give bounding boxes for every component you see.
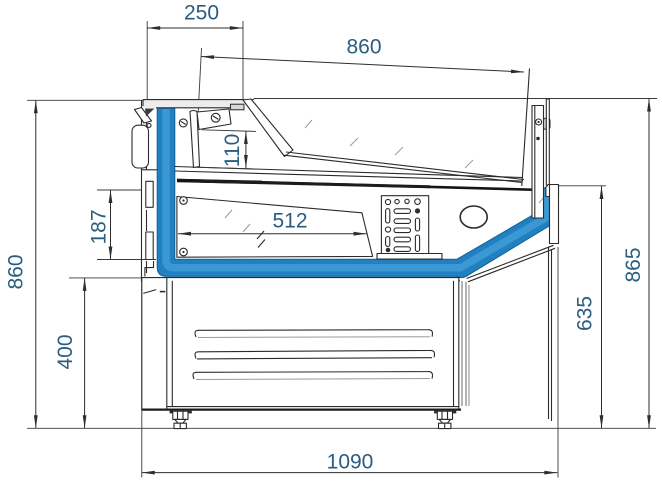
svg-text:865: 865 xyxy=(622,247,645,282)
svg-text:400: 400 xyxy=(54,334,77,369)
svg-text:110: 110 xyxy=(221,134,244,167)
svg-text:512: 512 xyxy=(272,210,307,233)
svg-text:860: 860 xyxy=(5,254,28,289)
svg-text:860: 860 xyxy=(346,36,381,59)
svg-text:250: 250 xyxy=(184,2,219,25)
svg-text:187: 187 xyxy=(88,209,111,244)
svg-text:1090: 1090 xyxy=(327,451,374,474)
svg-text:635: 635 xyxy=(574,296,597,331)
